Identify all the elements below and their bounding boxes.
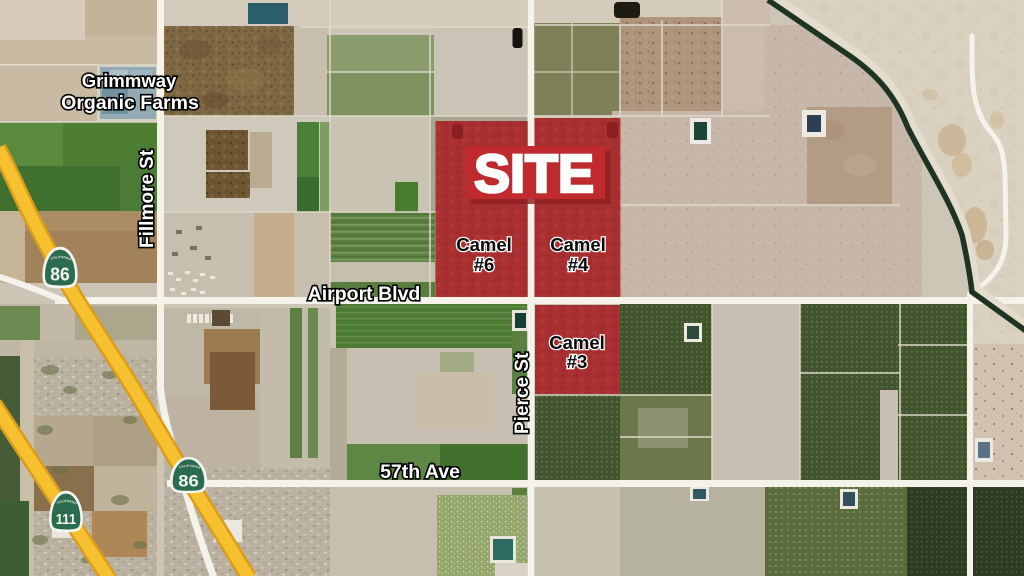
svg-text:Organic Farms: Organic Farms — [61, 92, 199, 114]
svg-text:86: 86 — [178, 471, 199, 490]
svg-text:Pierce St: Pierce St — [512, 352, 533, 434]
svg-text:57th Ave: 57th Ave — [380, 461, 460, 483]
svg-text:Grimmway: Grimmway — [82, 70, 177, 91]
svg-text:111: 111 — [56, 510, 77, 527]
svg-text:Camel: Camel — [456, 234, 512, 255]
svg-text:#6: #6 — [474, 254, 495, 275]
svg-text:#3: #3 — [567, 351, 588, 372]
svg-text:Camel: Camel — [550, 234, 606, 255]
svg-text:Fillmore St: Fillmore St — [137, 149, 158, 248]
svg-text:86: 86 — [50, 264, 69, 285]
svg-text:Camel: Camel — [549, 332, 605, 353]
svg-text:#4: #4 — [568, 254, 589, 275]
svg-text:Airport Blvd: Airport Blvd — [308, 283, 421, 305]
svg-text:SITE: SITE — [474, 144, 594, 204]
